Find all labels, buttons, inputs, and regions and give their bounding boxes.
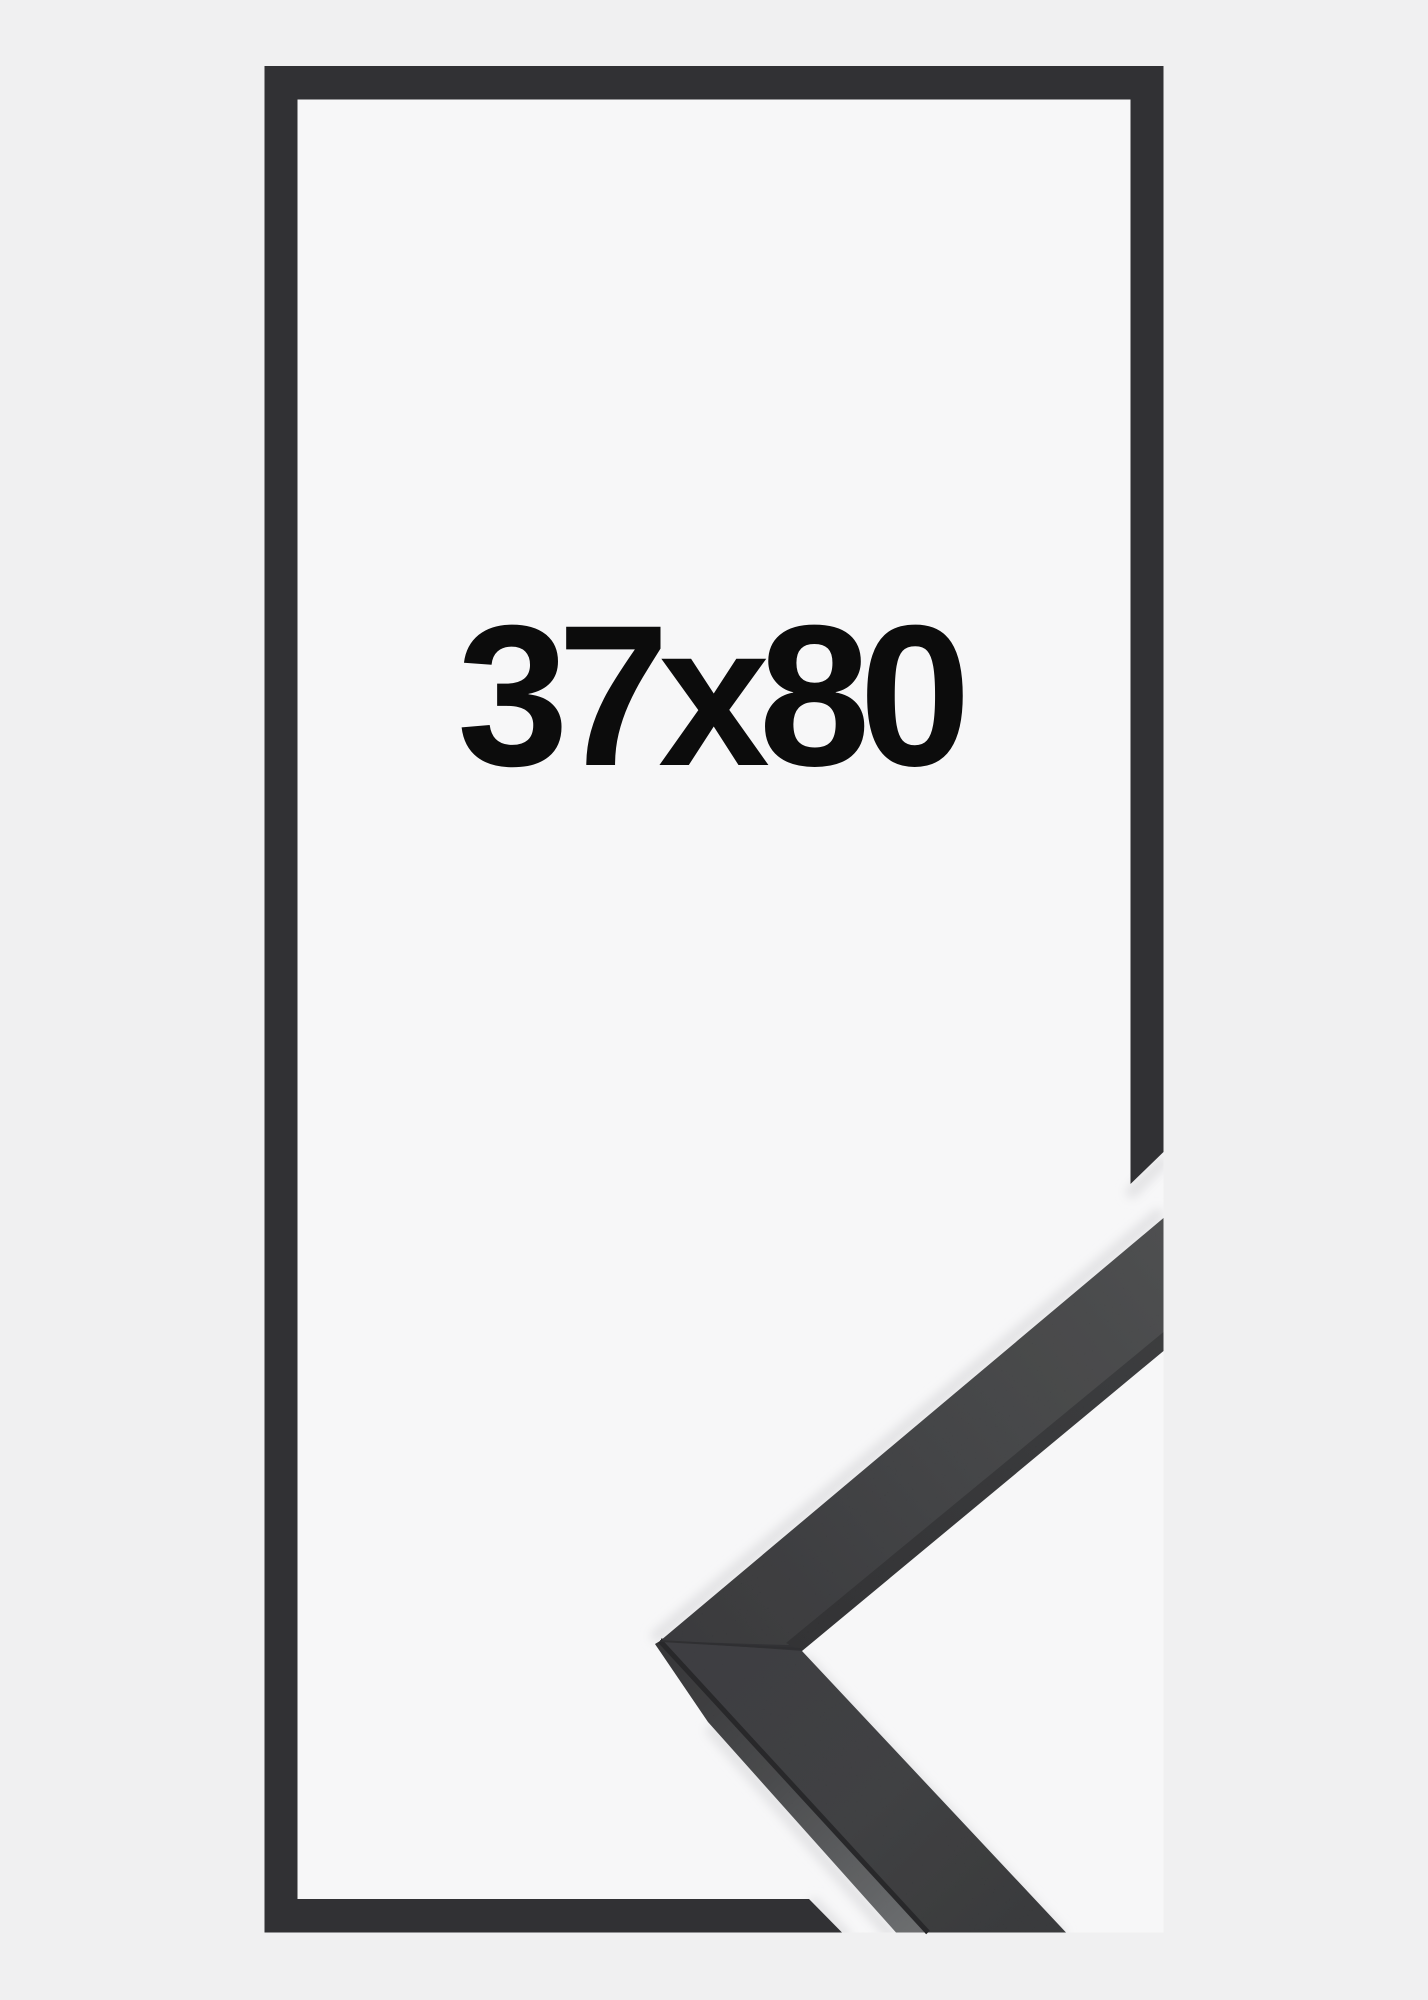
svg-text:37x80: 37x80 <box>457 583 971 808</box>
